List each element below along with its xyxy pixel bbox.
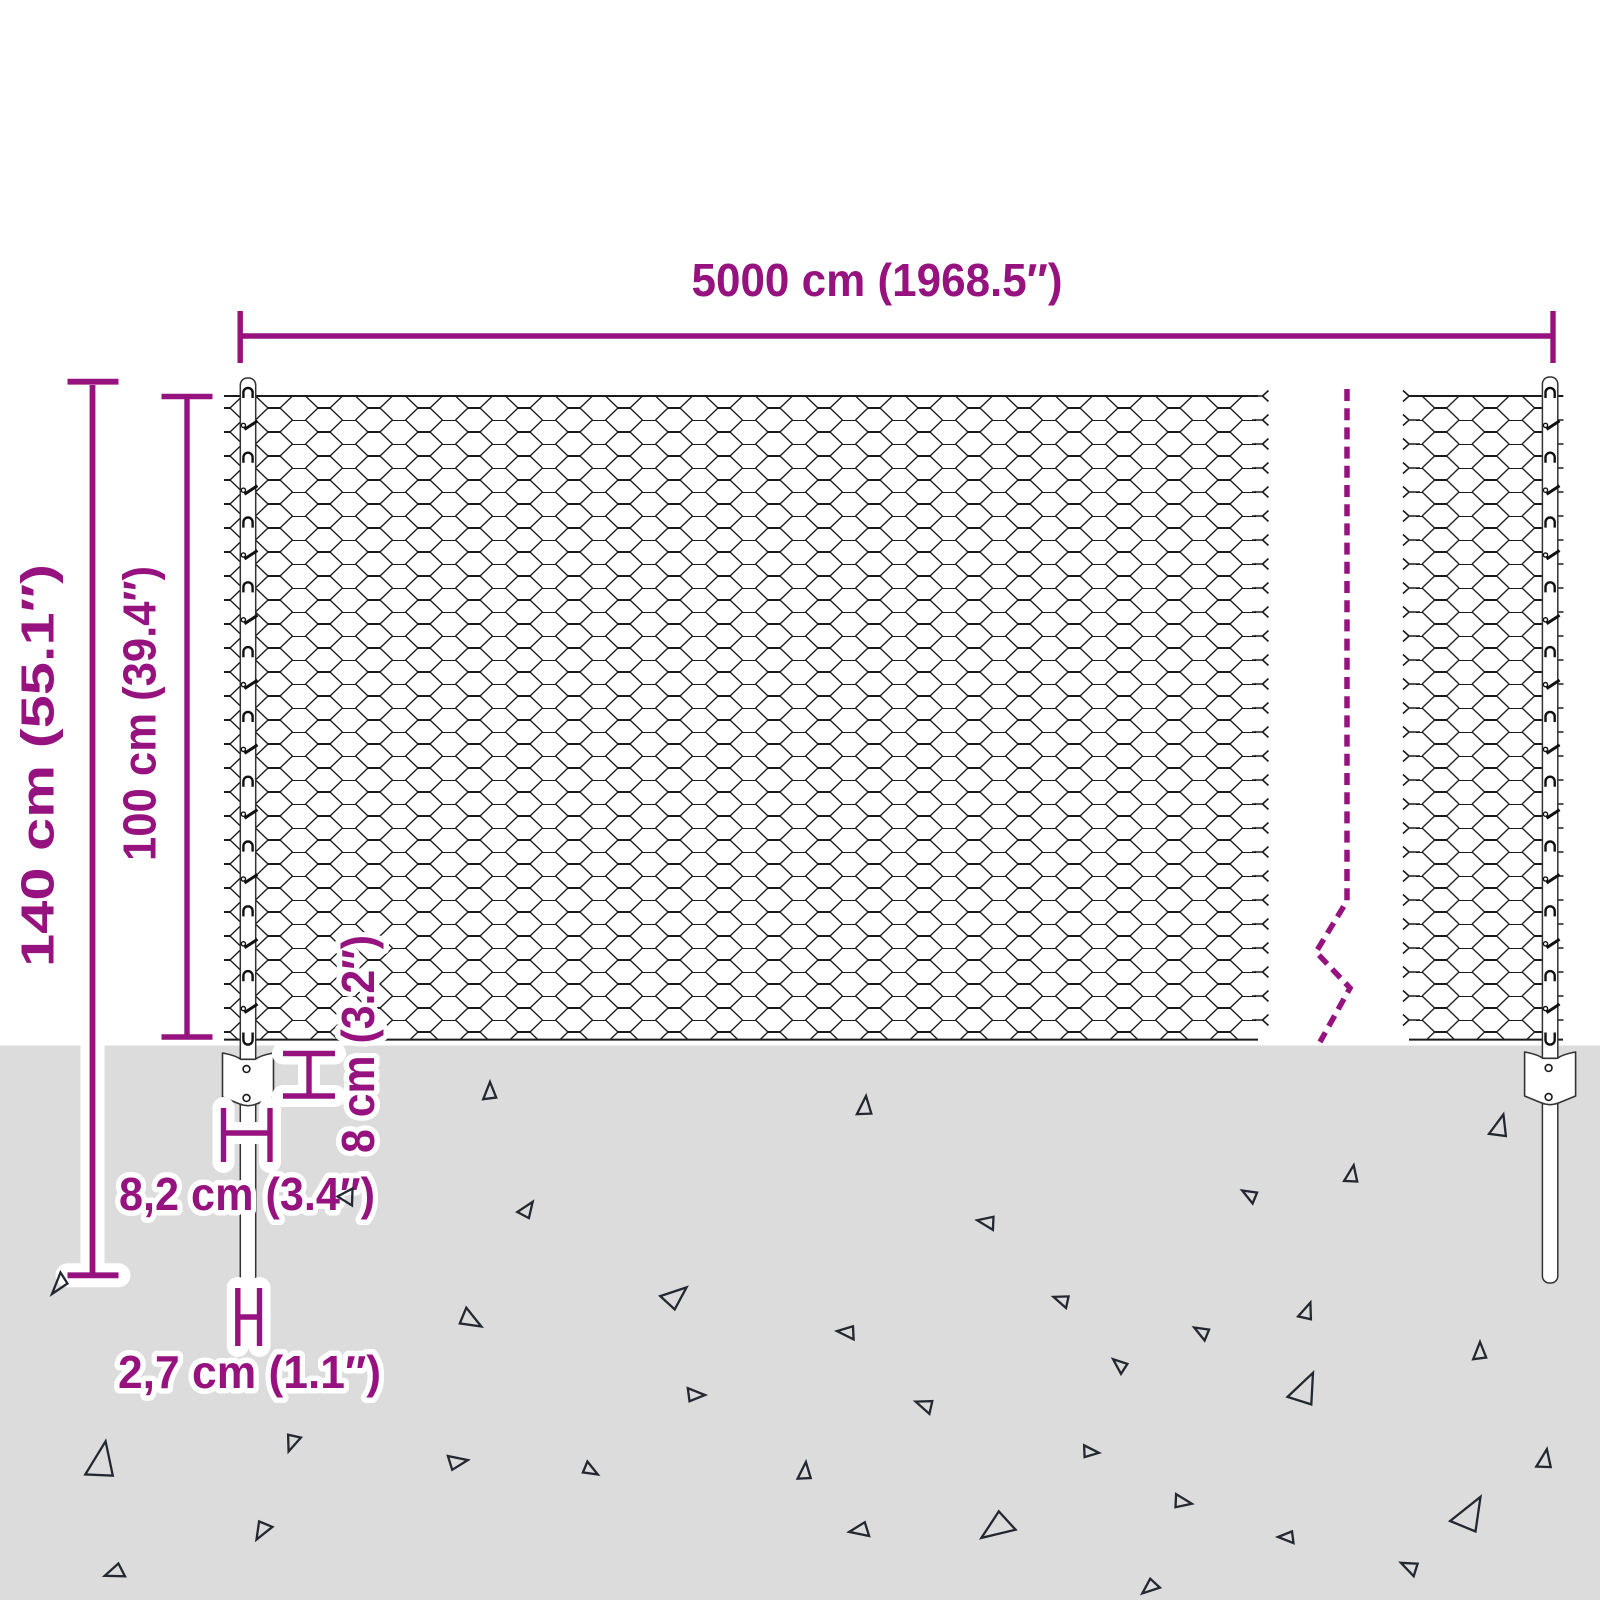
svg-text:140 cm (55.1″): 140 cm (55.1″)	[12, 564, 64, 967]
svg-text:8 cm (3.2″): 8 cm (3.2″)	[332, 935, 384, 1153]
svg-text:100 cm (39.4″): 100 cm (39.4″)	[114, 566, 166, 861]
svg-text:8,2 cm (3.4″): 8,2 cm (3.4″)	[119, 1168, 375, 1220]
svg-text:2,7 cm (1.1″): 2,7 cm (1.1″)	[118, 1346, 381, 1398]
svg-text:5000 cm (1968.5″): 5000 cm (1968.5″)	[692, 254, 1063, 306]
